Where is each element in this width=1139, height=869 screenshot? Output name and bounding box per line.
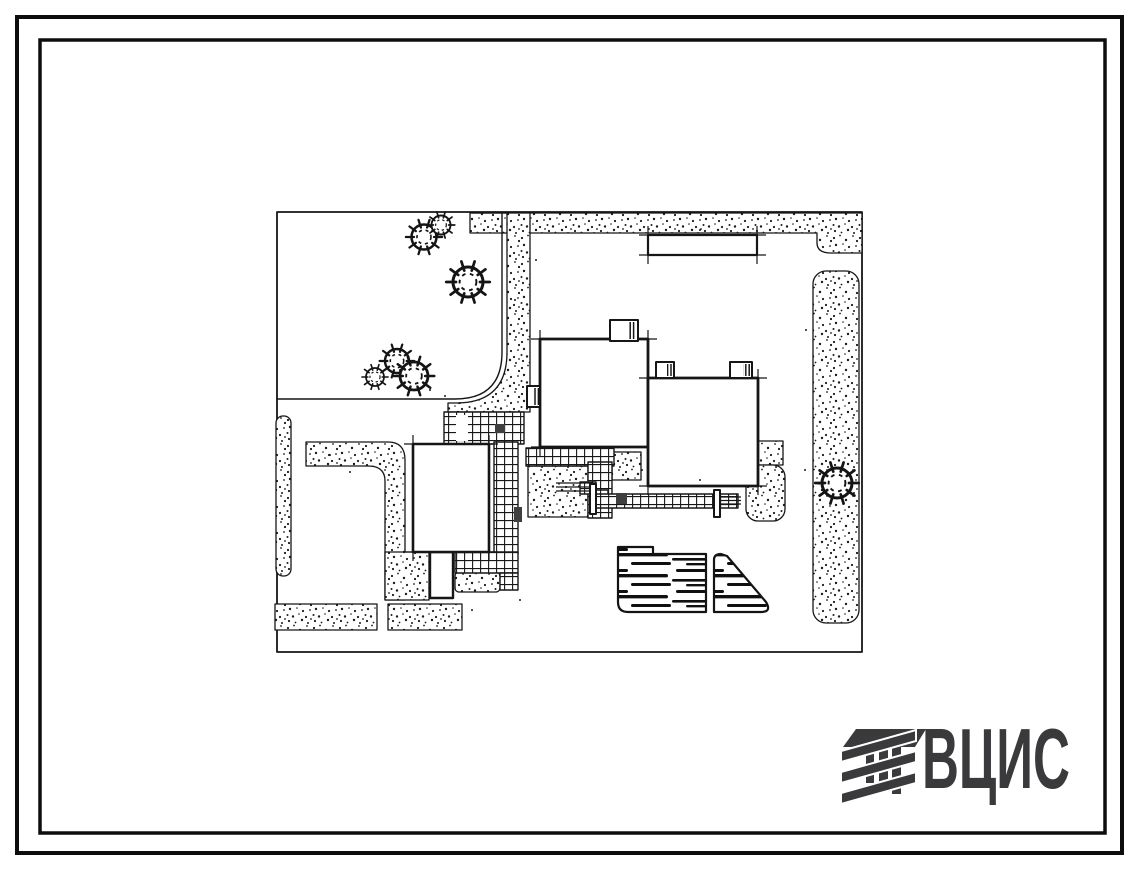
paved-patch-south [500, 573, 518, 590]
building-b [648, 378, 758, 486]
rooftop-hatch-a [628, 322, 636, 339]
ramp-accent-1 [514, 507, 522, 522]
paved-walk-east-of-building-c [494, 442, 518, 554]
paved-gap [456, 415, 468, 441]
planting-strip-right [813, 271, 859, 623]
site-plan-canvas: ВЦИС [0, 0, 1139, 869]
site-plan [275, 212, 862, 652]
paved-walk-south-of-building-c [455, 552, 518, 573]
planting-patch-mid [612, 452, 641, 480]
ramp-accent-4 [495, 424, 505, 433]
planting-strip-left [276, 416, 291, 576]
building-c-entrance-walk [430, 552, 453, 598]
ramp-accent-2 [616, 493, 627, 504]
planting-block-west-of-walk [385, 552, 429, 600]
planting-bed-bottom-left [275, 604, 377, 630]
rooftop-hatch-b-west [667, 364, 672, 376]
planting-bed-bottom-center [388, 604, 462, 630]
drawing-sheet: ВЦИС [0, 0, 1139, 869]
logo-text: ВЦИС [922, 712, 1070, 807]
planting-block-east-of-walk [455, 572, 500, 592]
parking-lot-rectangular [618, 547, 706, 612]
planting-patch-southeast-upper [757, 441, 783, 465]
building-c [413, 444, 489, 552]
walkway-post-east [714, 490, 720, 517]
rooftop-hatch-b-east [743, 364, 750, 376]
side-hatch-a [533, 388, 539, 405]
walkway-post-west [590, 484, 596, 514]
building-a [540, 339, 648, 447]
building-north-annex [648, 235, 757, 255]
